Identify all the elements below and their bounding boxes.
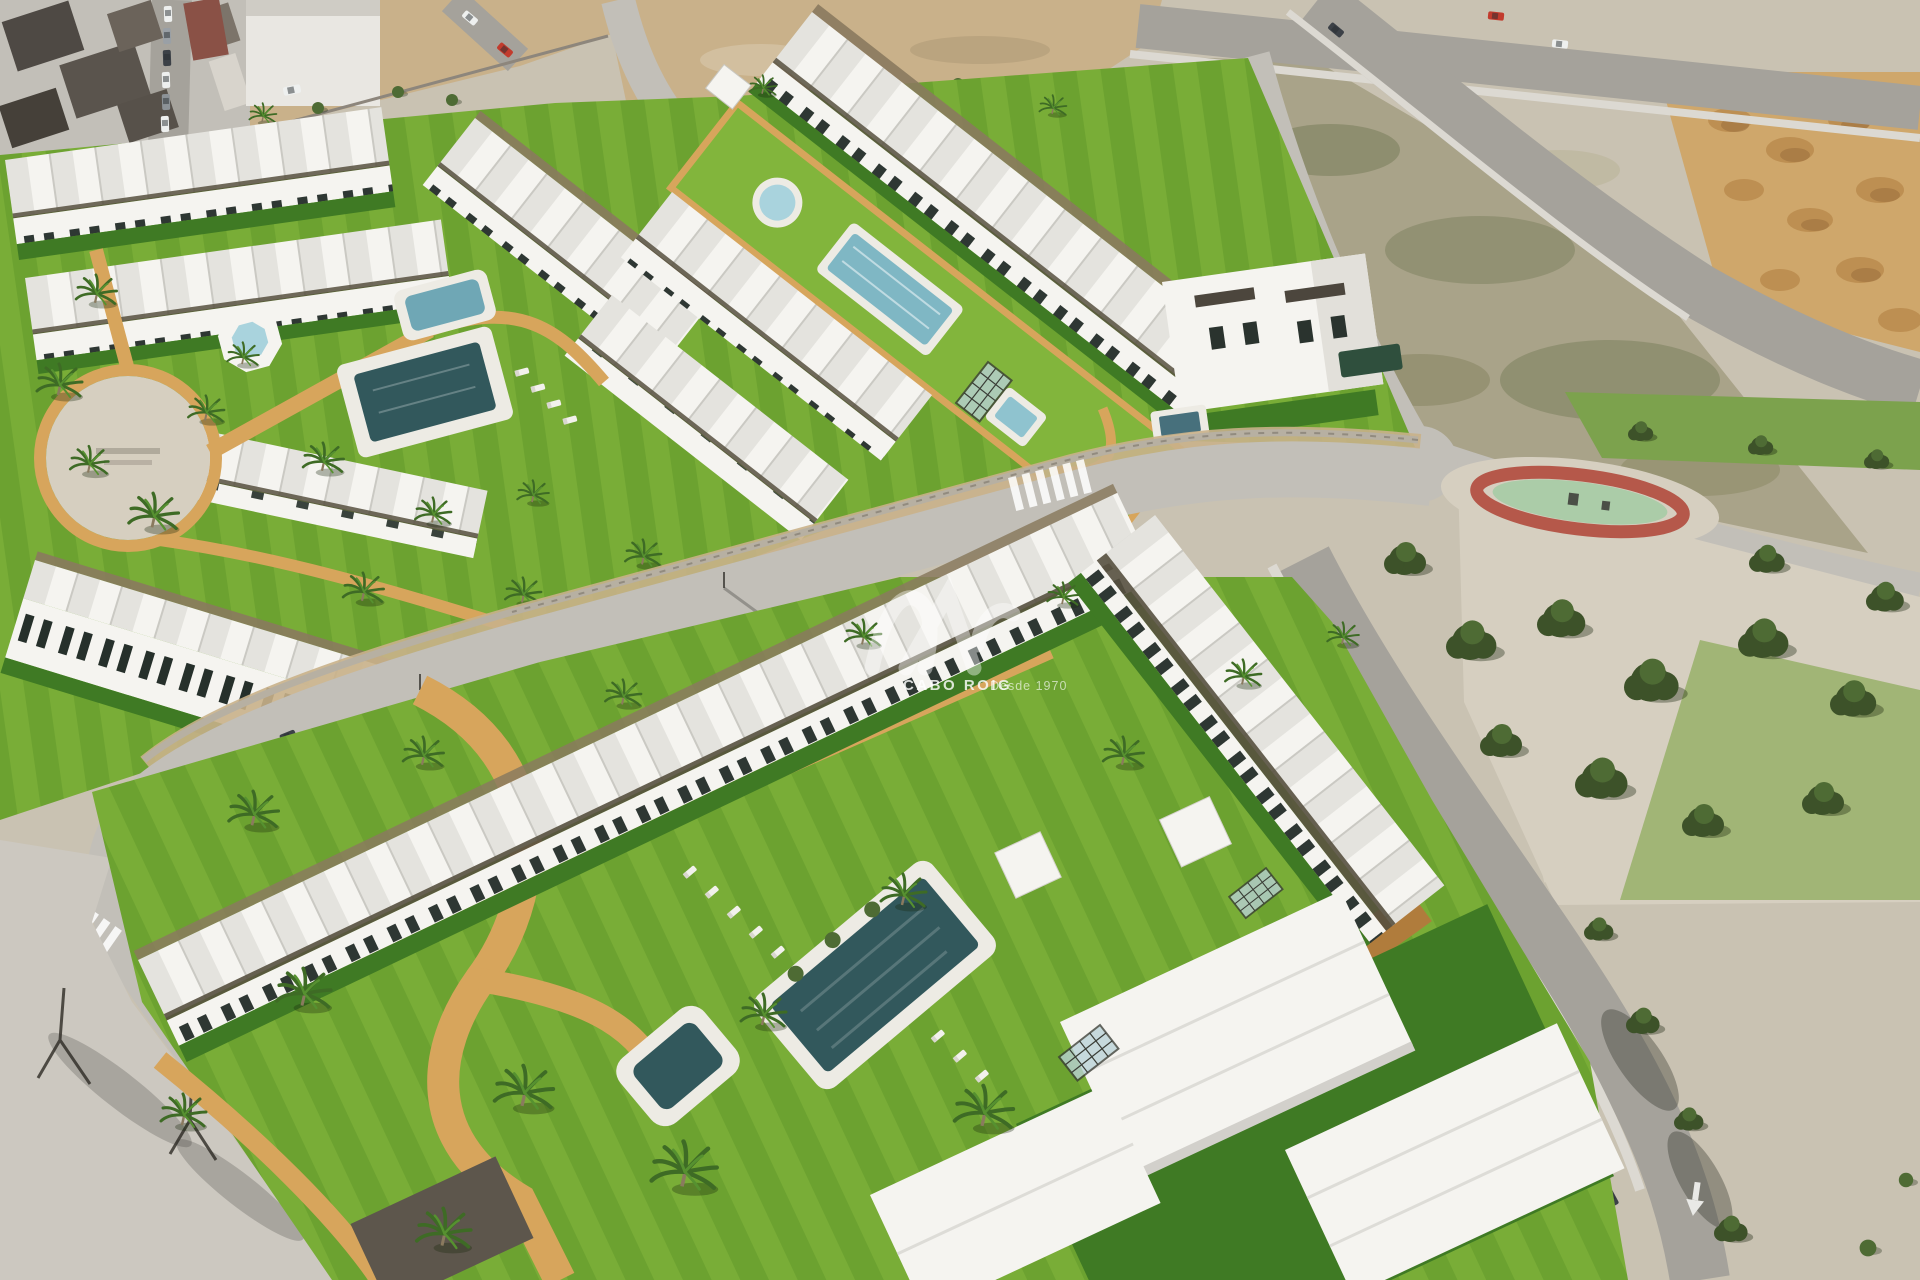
aerial-render-scene: CABO ROIG Desde 1970 <box>0 0 1920 1280</box>
plaza-ground-lettering <box>96 448 160 454</box>
aerial-render-screenshot: CABO ROIG Desde 1970 <box>0 0 1920 1280</box>
watermark-tagline: Desde 1970 <box>990 679 1067 693</box>
red-car <box>1488 11 1505 21</box>
